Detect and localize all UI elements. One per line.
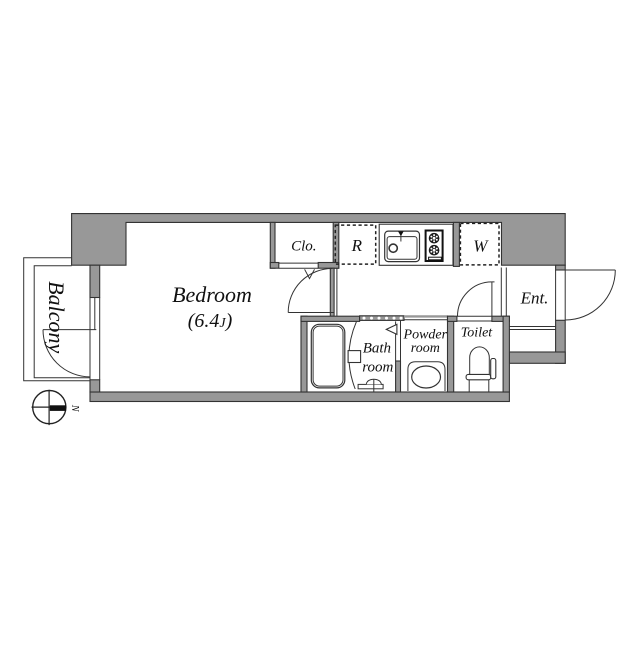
- svg-text:Ent.: Ent.: [520, 289, 549, 308]
- svg-text:room: room: [411, 341, 440, 356]
- svg-text:W: W: [473, 237, 489, 256]
- svg-text:Bedroom: Bedroom: [172, 282, 252, 307]
- svg-text:N: N: [69, 404, 80, 413]
- svg-text:R: R: [351, 236, 363, 255]
- svg-text:Bath: Bath: [363, 341, 391, 357]
- svg-text:(6.4J): (6.4J): [188, 310, 233, 332]
- svg-text:room: room: [362, 359, 393, 375]
- svg-text:Clo.: Clo.: [291, 238, 316, 254]
- svg-text:Balcony: Balcony: [44, 281, 69, 353]
- svg-text:Toilet: Toilet: [461, 326, 493, 341]
